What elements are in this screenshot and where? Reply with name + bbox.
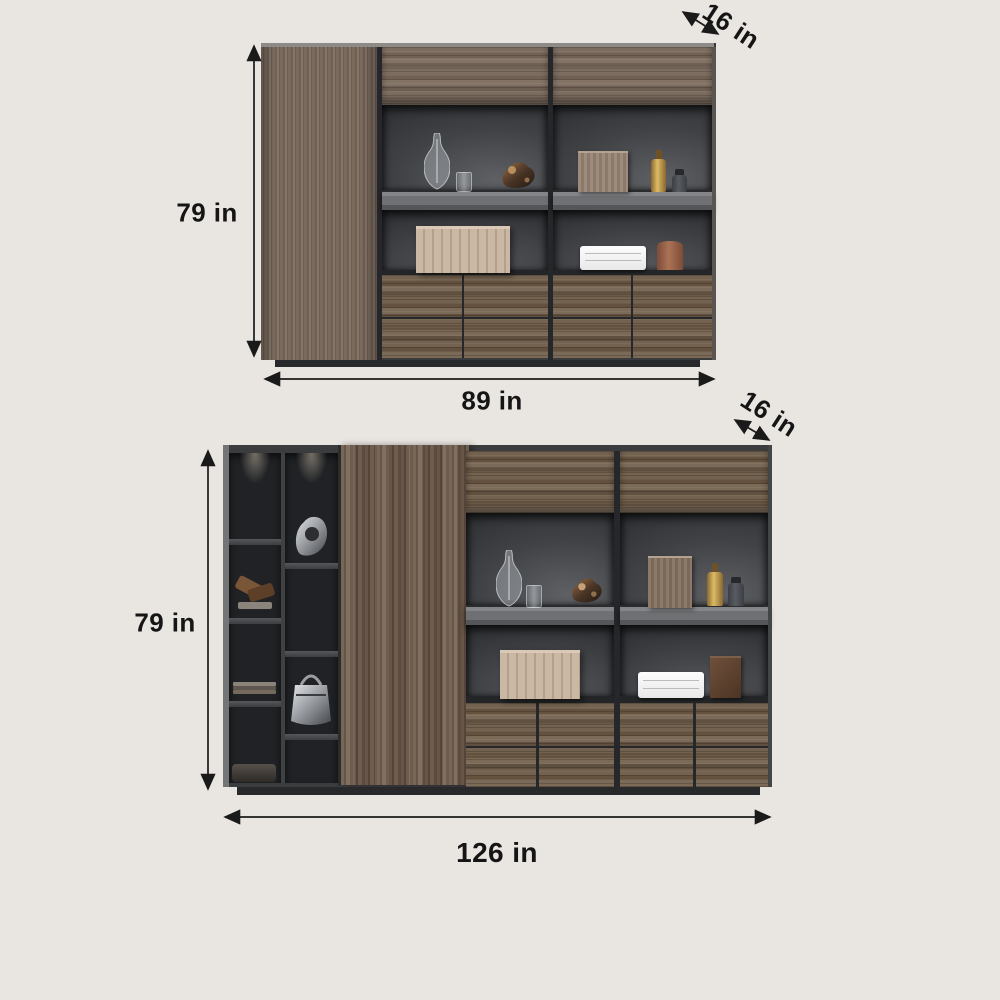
flap-door-panel [466, 451, 614, 515]
gold-bottle [707, 572, 723, 606]
spotlight-glow [289, 453, 334, 505]
drawer-front [466, 703, 614, 787]
shelf-ledge [285, 651, 338, 657]
top-cabinet-width-label: 89 in [461, 386, 522, 417]
display-shelf [382, 190, 548, 210]
gold-bottle [651, 159, 666, 192]
terracotta-vase [657, 241, 683, 270]
small-jar [672, 175, 687, 192]
small-jar [728, 583, 744, 606]
drawer-gap [382, 317, 548, 319]
drawer-gap [553, 317, 712, 319]
plinth [237, 787, 760, 795]
leather-accessories [234, 572, 276, 612]
silver-sculpture [292, 512, 330, 556]
glass-decanter [496, 550, 522, 607]
drawer-gap [466, 746, 614, 748]
shelf-ledge [229, 701, 281, 707]
open-shelf-column [285, 453, 338, 783]
flap-door-panel [382, 47, 548, 107]
striped-storage-box [416, 226, 510, 273]
drawer-front [553, 275, 712, 358]
plinth [275, 360, 700, 367]
flap-door-panel [620, 451, 768, 515]
bronze-sculpture [570, 573, 603, 606]
magazine-stack [638, 672, 704, 698]
right-side-edge [768, 445, 772, 787]
drawer-front [382, 275, 548, 358]
sliding-door [338, 445, 469, 785]
top-cabinet-image [261, 43, 716, 367]
shelf-ledge [229, 539, 281, 545]
bottom-cabinet-depth-label: 16 in [735, 384, 803, 443]
display-niche [620, 513, 768, 605]
handbag [289, 665, 333, 727]
product-dimension-diagram: 79 in 89 in 16 in 79 in 126 in 16 in [0, 0, 1000, 1000]
fluted-door [261, 47, 377, 360]
white-book-stack [580, 246, 646, 270]
book-stack [233, 682, 276, 694]
striped-storage-box [500, 650, 580, 699]
bottom-cabinet-width-label: 126 in [456, 837, 538, 869]
bottom-cabinet-image [223, 445, 772, 795]
flap-door-panel [553, 47, 712, 107]
folded-textile [232, 764, 276, 782]
top-cabinet-height-label: 79 in [176, 198, 237, 229]
shelf-ledge [285, 563, 338, 569]
glass-cup [456, 172, 472, 192]
bottom-cabinet-height-label: 79 in [134, 608, 195, 639]
drawer-front [620, 703, 768, 787]
drawer-gap [536, 703, 539, 787]
wood-display-box [578, 151, 628, 192]
glass-decanter [424, 133, 450, 190]
display-shelf [466, 605, 614, 625]
shelf-ledge [285, 734, 338, 740]
open-shelf-column [229, 453, 281, 783]
display-shelf [620, 605, 768, 625]
shelf-ledge [229, 618, 281, 624]
drawer-gap [620, 746, 768, 748]
spotlight-glow [233, 453, 277, 505]
display-niche [553, 105, 712, 190]
glass-cup [526, 585, 542, 608]
walnut-cube [710, 656, 741, 698]
wood-display-box [648, 556, 692, 608]
display-shelf [553, 190, 712, 210]
side-panel-edge [712, 47, 716, 360]
drawer-gap [693, 703, 696, 787]
bronze-sculpture [500, 158, 536, 190]
